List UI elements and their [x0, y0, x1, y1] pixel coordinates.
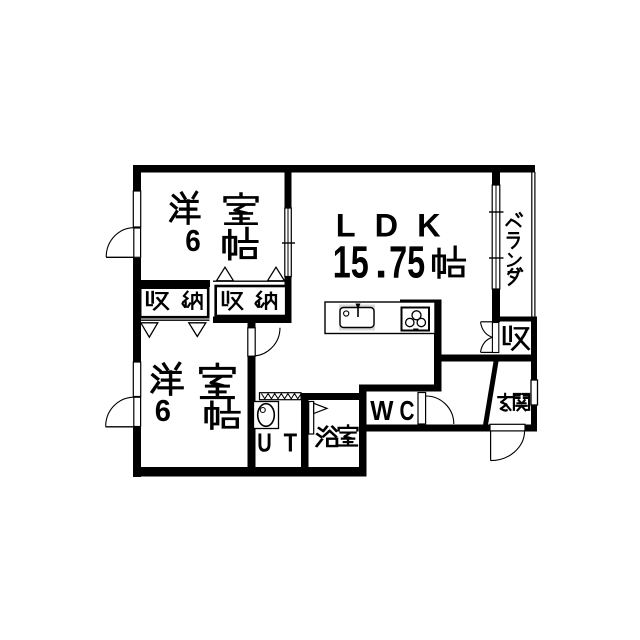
svg-text:W: W [370, 395, 394, 426]
svg-text:6: 6 [185, 224, 201, 258]
svg-text:.: . [375, 237, 388, 288]
svg-text:15: 15 [333, 237, 369, 288]
svg-text:C: C [400, 395, 415, 426]
svg-text:6: 6 [155, 393, 171, 428]
svg-text:U: U [257, 427, 272, 457]
svg-text:75: 75 [389, 237, 425, 288]
svg-text:T: T [284, 427, 298, 457]
